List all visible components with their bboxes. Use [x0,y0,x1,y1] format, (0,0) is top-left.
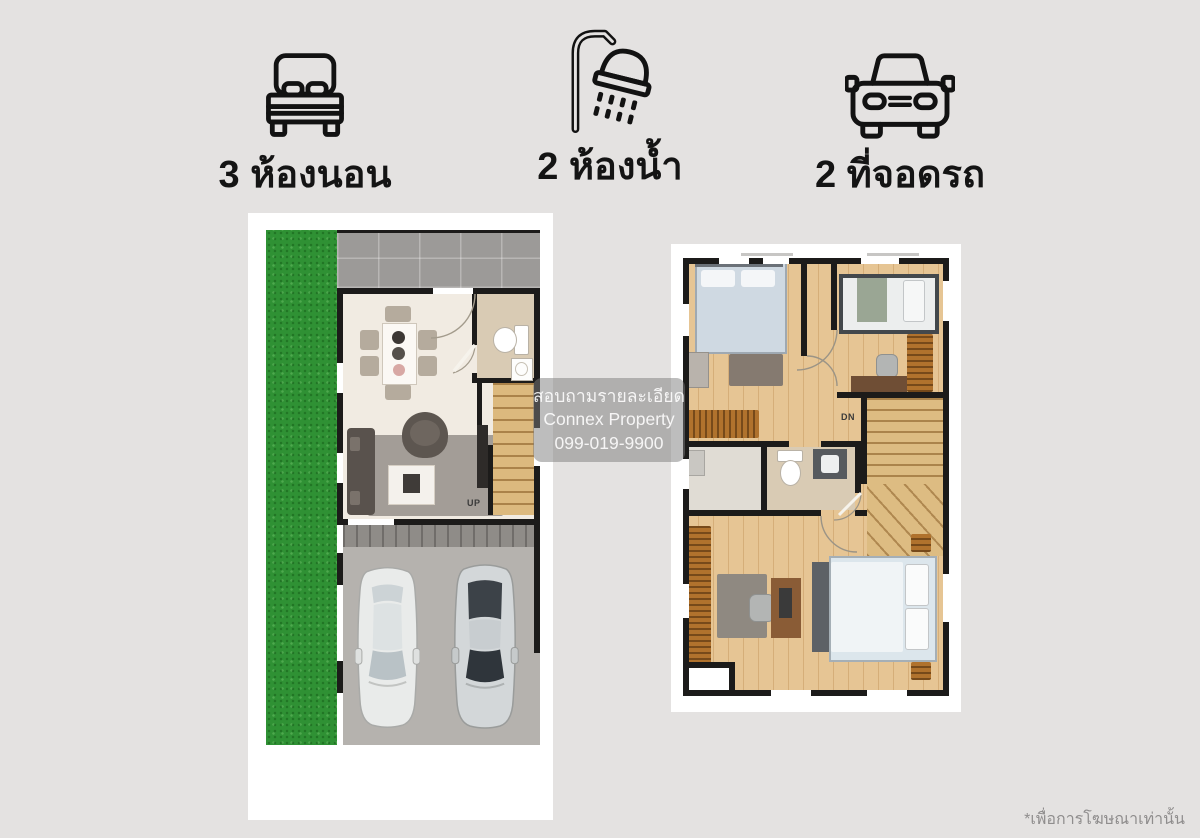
watermark-line3: 099-019-9900 [555,432,664,455]
first-floor-plan: UP [248,213,553,820]
bedrooms-label: 3 ห้องนอน [219,154,392,198]
flyer-root: { "page": { "background_color": "#e4e2e1… [0,0,1200,838]
watermark-line1: สอบถามรายละเอียด [533,385,685,408]
watermark-line2: Connex Property [543,408,674,431]
shower-icon [562,22,658,134]
door-arcs-2f [671,244,961,712]
bathrooms-label: 2 ห้องน้ำ [537,146,682,190]
parking-label: 2 ที่จอดรถ [815,154,985,198]
second-floor-plan: DN [671,244,961,712]
feature-parking: 2 ที่จอดรถ [775,30,1025,198]
feature-bathrooms: 2 ห้องน้ำ [495,22,725,190]
bed-icon [255,30,355,142]
car-icon [845,30,955,142]
watermark: สอบถามรายละเอียด Connex Property 099-019… [533,378,685,462]
disclaimer-note: *เพื่อการโฆษณาเท่านั้น [1024,807,1185,832]
feature-bedrooms: 3 ห้องนอน [180,30,430,198]
door-arcs-1f [248,213,553,820]
